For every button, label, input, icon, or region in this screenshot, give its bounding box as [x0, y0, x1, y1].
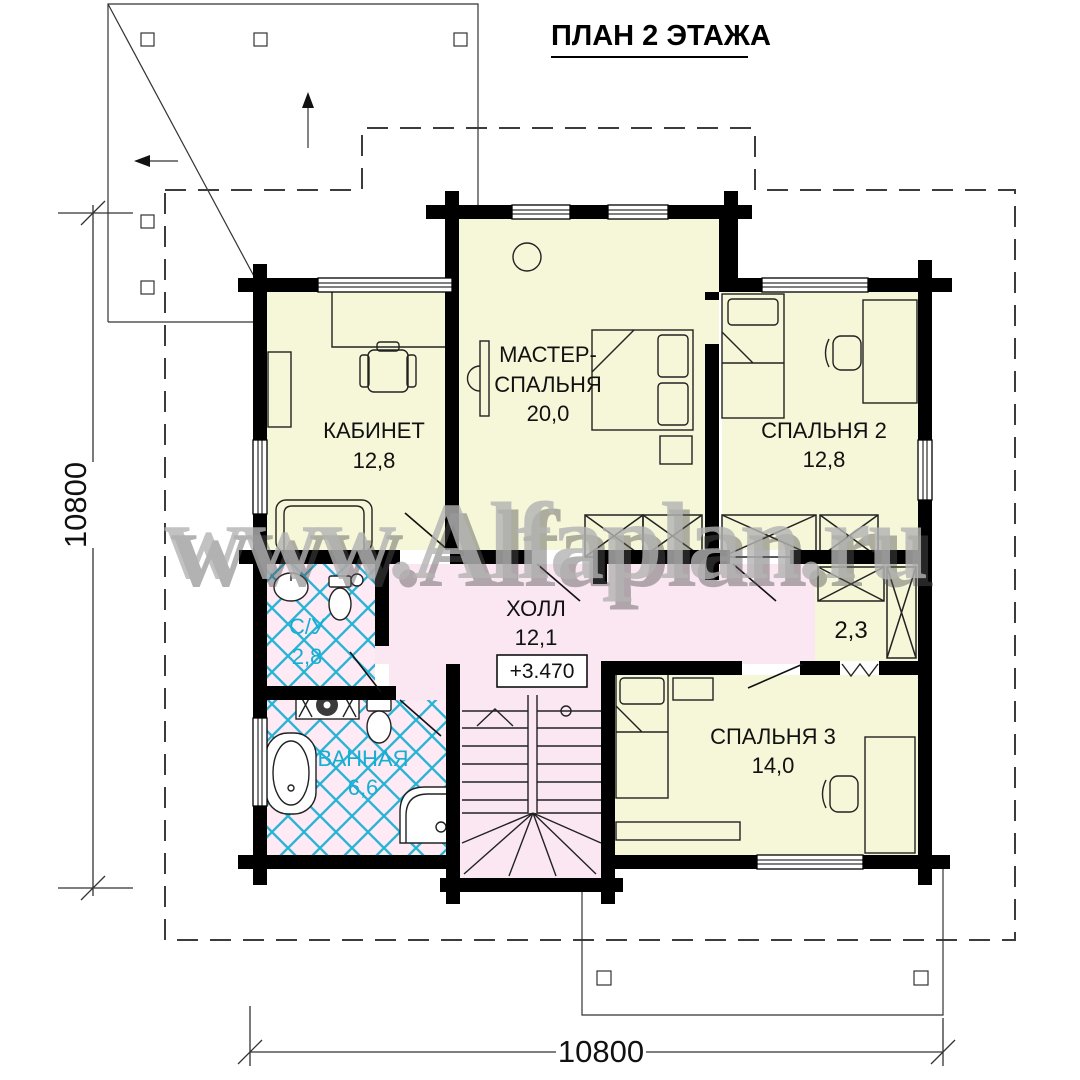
watermark: www.Alfaplan.ru www.Alfaplan.ru	[164, 480, 934, 610]
roof-slope-arrow-up	[302, 92, 314, 148]
terrace-outline	[108, 4, 478, 322]
area-master: 20,0	[527, 401, 570, 426]
area-bedroom2: 12,8	[803, 447, 846, 472]
label-kabinet: КАБИНЕТ	[323, 418, 425, 443]
label-master-line2: СПАЛЬНЯ	[494, 372, 602, 397]
dimension-left: 10800	[58, 201, 133, 900]
drawing-title: ПЛАН 2 ЭТАЖА	[551, 20, 771, 57]
door-closet-folding	[841, 661, 879, 676]
hall-bath-passage	[389, 664, 446, 700]
area-bathroom: 6,6	[348, 775, 379, 800]
roof-slope-arrow-left	[134, 155, 178, 167]
area-closet: 2,3	[834, 617, 867, 644]
area-wc: 2,8	[292, 644, 323, 669]
elevation-value: +3.470	[510, 660, 575, 683]
window-bathroom-left	[253, 718, 267, 806]
elevation-mark: +3.470	[497, 655, 587, 687]
porch-outline	[582, 869, 943, 1015]
toilet	[367, 699, 391, 743]
label-master-line1: МАСТЕР-	[499, 342, 597, 367]
label-bathroom: ВАННАЯ	[318, 746, 409, 771]
page-title: ПЛАН 2 ЭТАЖА	[551, 20, 771, 52]
label-bedroom2: СПАЛЬНЯ 2	[761, 418, 887, 443]
floor-plan: КАБИНЕТ 12,8 МАСТЕР- СПАЛЬНЯ 20,0 СПАЛЬН…	[0, 0, 1080, 1080]
bathtub	[266, 733, 316, 814]
label-bedroom3: СПАЛЬНЯ 3	[710, 724, 836, 749]
window-kabinet-top	[318, 278, 452, 292]
area-bedroom3: 14,0	[752, 753, 795, 778]
window-bedroom2-top	[762, 278, 868, 292]
window-bedroom3-bottom	[757, 855, 863, 869]
dimension-bottom-value: 10800	[558, 1034, 644, 1069]
area-hall: 12,1	[515, 625, 558, 650]
label-wc: С/У	[289, 614, 326, 639]
dimension-left-value: 10800	[58, 462, 93, 548]
window-master-2	[608, 205, 668, 219]
watermark-text: www.Alfaplan.ru	[164, 480, 927, 602]
window-master-1	[512, 205, 570, 219]
area-kabinet: 12,8	[353, 448, 396, 473]
